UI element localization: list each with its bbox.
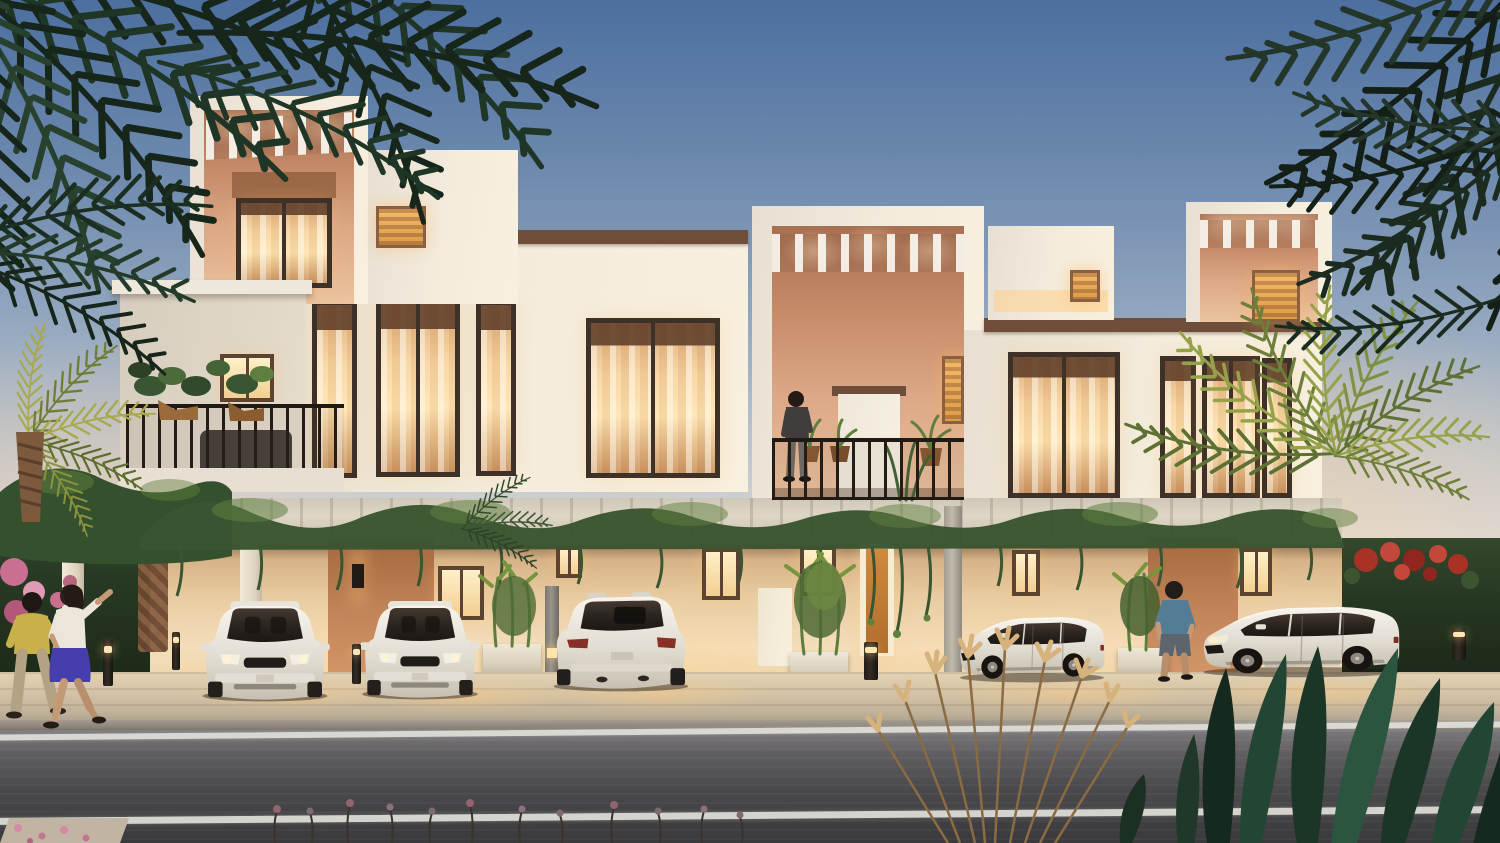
palm-fronds-top-right — [1217, 0, 1500, 360]
palm-fronds-top-left — [0, 0, 610, 393]
palm-canopy-layer — [0, 0, 1500, 843]
townhouse-dusk-rendering — [0, 0, 1500, 843]
